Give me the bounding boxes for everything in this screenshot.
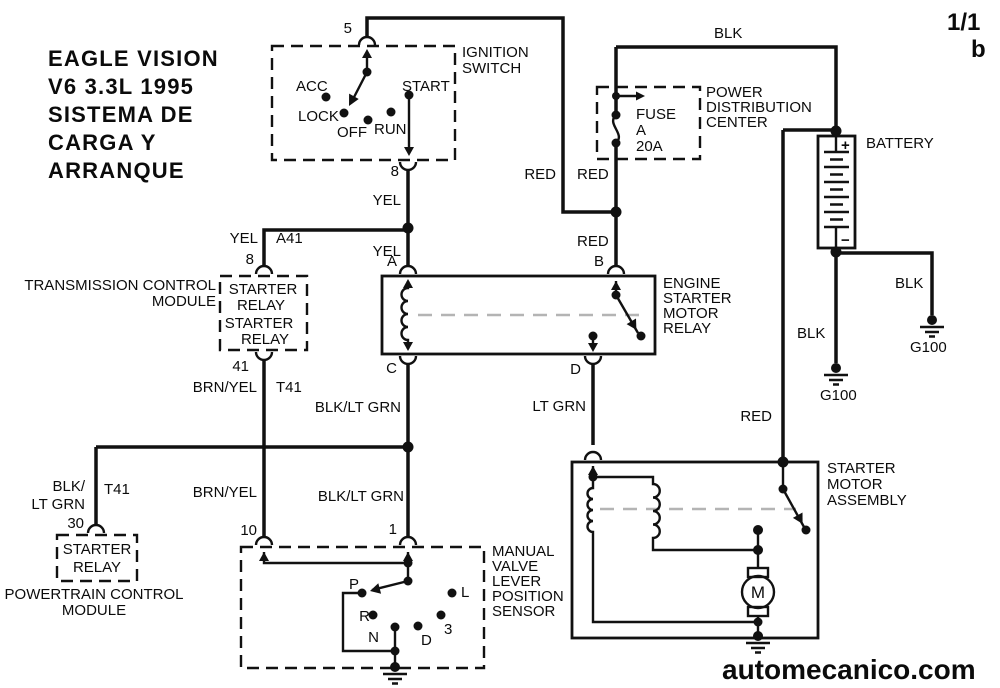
wiring-diagram-page: EAGLE VISION V6 3.3L 1995 SISTEMA DE CAR… bbox=[0, 0, 1000, 688]
run-contact bbox=[387, 108, 396, 117]
ground-dot bbox=[831, 363, 841, 373]
tcm-pin-8: 8 bbox=[246, 251, 254, 268]
tcm-label: TRANSMISSION CONTROL bbox=[24, 277, 216, 294]
connector-solenoid-pin bbox=[585, 452, 601, 460]
sensor-pin-10: 10 bbox=[240, 522, 257, 539]
pcm-label: POWERTRAIN CONTROL bbox=[5, 586, 184, 603]
wire-label-yel: YEL bbox=[373, 192, 401, 209]
junction-dot bbox=[754, 618, 763, 627]
wire-label-yel: YEL bbox=[230, 230, 258, 247]
connector-pin30 bbox=[88, 525, 104, 533]
pcm-label: MODULE bbox=[62, 602, 126, 619]
motor-symbol: M bbox=[751, 583, 765, 602]
relay-pin-a: A bbox=[387, 253, 397, 270]
ground-g100-label: G100 bbox=[820, 387, 857, 404]
wire-label-blkltgrn: BLK/ bbox=[52, 478, 85, 495]
starter-motor-assembly: M STARTER MOTOR ASSEMBLY bbox=[572, 452, 907, 653]
battery-positive: + bbox=[841, 137, 850, 154]
wire-label-blkltgrn: BLK/LT GRN bbox=[315, 399, 401, 416]
sheet-number: 1/1 bbox=[947, 9, 980, 36]
relay-coil bbox=[402, 281, 408, 349]
sensor-pos-r: R bbox=[359, 608, 370, 625]
wire-label-t41: T41 bbox=[104, 481, 130, 498]
title-line: SISTEMA DE bbox=[48, 102, 194, 127]
fuse-id: A bbox=[636, 122, 646, 139]
title-line: V6 3.3L 1995 bbox=[48, 74, 194, 99]
junction-dot bbox=[404, 559, 413, 568]
ignition-pin-8: 8 bbox=[391, 163, 399, 180]
watermark: automecanico.com bbox=[722, 654, 976, 685]
pcm-pin-30: 30 bbox=[67, 515, 84, 532]
wire-yel: YEL YEL YEL A41 bbox=[230, 170, 414, 265]
connector-pin10 bbox=[256, 537, 272, 545]
sensor-pos-l: L bbox=[461, 584, 469, 601]
ground-icon bbox=[920, 327, 944, 337]
wire-label-blk: BLK bbox=[895, 275, 923, 292]
wire-label-a41: A41 bbox=[276, 230, 303, 247]
ignition-switch-label: IGNITION bbox=[462, 44, 529, 61]
tcm-pin-41: 41 bbox=[232, 358, 249, 375]
connector-pin-d bbox=[585, 356, 601, 364]
title-line: CARGA Y bbox=[48, 130, 157, 155]
tcm-relay-label: RELAY bbox=[237, 297, 285, 314]
battery-label: BATTERY bbox=[866, 135, 934, 152]
starter-assembly-label: ASSEMBLY bbox=[827, 492, 907, 509]
wire-label-blk: BLK bbox=[797, 325, 825, 342]
junction-dot bbox=[391, 647, 400, 656]
connector-pin41 bbox=[256, 352, 272, 360]
sheet-indicator: 1/1 b bbox=[947, 9, 986, 63]
connector-pin1 bbox=[400, 537, 416, 545]
connector-pin-a bbox=[400, 266, 416, 274]
ground-icon bbox=[746, 643, 770, 653]
starter-assembly-label: MOTOR bbox=[827, 476, 883, 493]
diagram-title: EAGLE VISION V6 3.3L 1995 SISTEMA DE CAR… bbox=[48, 46, 219, 183]
tcm-relay-label: STARTER bbox=[225, 315, 294, 332]
ignition-pos-off: OFF bbox=[337, 124, 367, 141]
starter-assembly-label: STARTER bbox=[827, 460, 896, 477]
wire-label-brnyel: BRN/YEL bbox=[193, 379, 257, 396]
arrow-up-icon bbox=[362, 49, 372, 58]
position-d-contact bbox=[414, 622, 423, 631]
powertrain-control-module: 30 STARTER RELAY POWERTRAIN CONTROL MODU… bbox=[5, 515, 184, 619]
engine-starter-motor-relay: A B C D ENGINE STARTER MOTOR RELAY bbox=[382, 253, 732, 378]
battery-plates bbox=[824, 152, 849, 227]
ground-dot bbox=[927, 315, 937, 325]
fuse-label: FUSE bbox=[636, 106, 676, 123]
tcm-relay-label: STARTER bbox=[229, 281, 298, 298]
wire-label-ltgrn: LT GRN bbox=[532, 398, 586, 415]
ignition-pos-lock: LOCK bbox=[298, 108, 339, 125]
battery-negative: − bbox=[841, 232, 850, 249]
lock-contact bbox=[340, 109, 349, 118]
ground-g100-label: G100 bbox=[910, 339, 947, 356]
power-distribution-center: FUSE A 20A POWER DISTRIBUTION CENTER RED… bbox=[577, 47, 812, 266]
title-line: ARRANQUE bbox=[48, 158, 185, 183]
ignition-switch: ACC LOCK OFF RUN START 5 8 IGNITION SWIT… bbox=[272, 20, 529, 180]
arrow-down-icon bbox=[588, 343, 598, 352]
title-line: EAGLE VISION bbox=[48, 46, 219, 71]
ignition-switch-label: SWITCH bbox=[462, 60, 521, 77]
arrow-up-icon bbox=[403, 279, 413, 288]
pcm-relay-label: STARTER bbox=[63, 541, 132, 558]
wiring-diagram: EAGLE VISION V6 3.3L 1995 SISTEMA DE CAR… bbox=[0, 0, 1000, 688]
arrowhead-icon bbox=[370, 583, 381, 594]
relay-pin-b: B bbox=[594, 253, 604, 270]
connector-pin5 bbox=[359, 37, 375, 45]
wire-label-red: RED bbox=[577, 233, 609, 250]
position-n-contact bbox=[391, 623, 400, 632]
arrow-up-icon bbox=[611, 281, 621, 290]
junction-dot bbox=[611, 207, 622, 218]
manual-valve-lever-position-sensor: 10 1 P R N D 3 L MANUAL VALVE LEVER POSI… bbox=[240, 521, 563, 684]
connector-pin8 bbox=[400, 162, 416, 170]
sheet-letter: b bbox=[971, 36, 986, 63]
ground-icon bbox=[824, 375, 848, 385]
relay-pin-c: C bbox=[386, 360, 397, 377]
sensor-pin-1: 1 bbox=[389, 521, 397, 538]
wire-label-t41: T41 bbox=[276, 379, 302, 396]
sensor-pos-3: 3 bbox=[444, 621, 452, 638]
battery: RED + − BATTERY BLK G100 BLK G100 bbox=[740, 126, 946, 461]
pcm-relay-label: RELAY bbox=[73, 559, 121, 576]
connector-pin-c bbox=[400, 356, 416, 364]
arrow-down-icon bbox=[403, 342, 413, 351]
ignition-pos-run: RUN bbox=[374, 121, 407, 138]
ground-dot bbox=[390, 662, 400, 672]
position-l-contact bbox=[448, 589, 457, 598]
arrow-right-icon bbox=[636, 92, 645, 101]
wire-label-blk: BLK bbox=[714, 25, 742, 42]
relay-pin-d: D bbox=[570, 361, 581, 378]
wire-label-red: RED bbox=[577, 166, 609, 183]
connector-pin-b bbox=[608, 266, 624, 274]
sensor-pos-d: D bbox=[421, 632, 432, 649]
wire-label-blkltgrn: BLK/LT GRN bbox=[318, 488, 404, 505]
ignition-pin-5: 5 bbox=[344, 20, 352, 37]
position-3-contact bbox=[437, 611, 446, 620]
junction-dot bbox=[403, 223, 414, 234]
fuse-rating: 20A bbox=[636, 138, 663, 155]
transmission-control-module: 8 41 STARTER RELAY STARTER RELAY TRANSMI… bbox=[24, 251, 307, 375]
sensor-pos-n: N bbox=[368, 629, 379, 646]
wire-label-blkltgrn: LT GRN bbox=[31, 496, 85, 513]
ignition-pos-acc: ACC bbox=[296, 78, 328, 95]
wire-ltgrn: LT GRN bbox=[532, 364, 593, 445]
ground-icon bbox=[383, 674, 407, 684]
wire-label-red: RED bbox=[740, 408, 772, 425]
connector-pin8 bbox=[256, 266, 272, 274]
wire-label-brnyel: BRN/YEL bbox=[193, 484, 257, 501]
pdc-label: CENTER bbox=[706, 114, 768, 131]
tcm-label: MODULE bbox=[152, 293, 216, 310]
junction-dot bbox=[403, 442, 414, 453]
wire-label-red: RED bbox=[524, 166, 556, 183]
junction-dot bbox=[831, 126, 842, 137]
solenoid-coil-2 bbox=[593, 477, 758, 550]
ignition-pos-start: START bbox=[402, 78, 450, 95]
tcm-relay-label: RELAY bbox=[241, 331, 289, 348]
ground-dot bbox=[753, 631, 763, 641]
sensor-label: SENSOR bbox=[492, 603, 556, 620]
sensor-pos-p: P bbox=[349, 576, 359, 593]
relay-label: RELAY bbox=[663, 320, 711, 337]
arrow-down-icon bbox=[404, 147, 414, 156]
